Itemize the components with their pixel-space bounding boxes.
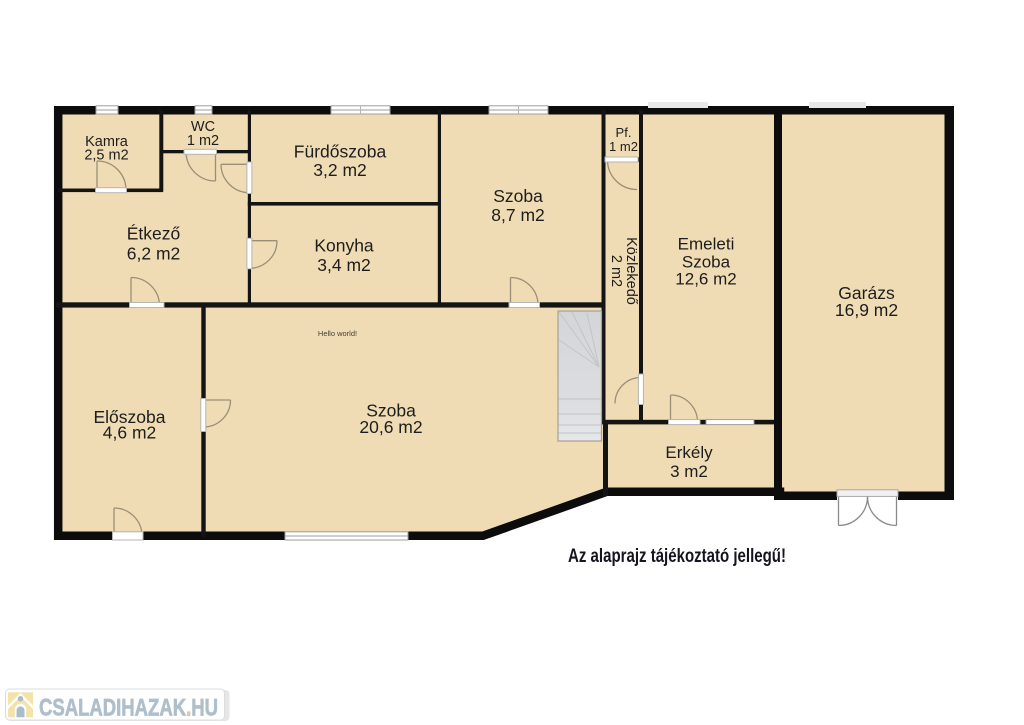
svg-text:Konyha: Konyha <box>314 236 374 256</box>
svg-text:Az alaprajz tájékoztató jelleg: Az alaprajz tájékoztató jellegű! <box>568 546 786 567</box>
svg-text:2 m2: 2 m2 <box>608 255 624 287</box>
svg-text:1 m2: 1 m2 <box>187 133 219 149</box>
svg-text:3 m2: 3 m2 <box>670 462 708 481</box>
svg-text:4,6 m2: 4,6 m2 <box>103 423 157 443</box>
svg-text:Közlekedő: Közlekedő <box>623 237 639 305</box>
svg-text:Pf.: Pf. <box>616 125 632 140</box>
svg-text:Étkező: Étkező <box>127 224 181 244</box>
svg-text:16,9 m2: 16,9 m2 <box>835 300 898 320</box>
svg-text:6,2 m2: 6,2 m2 <box>127 244 181 264</box>
svg-text:1 m2: 1 m2 <box>609 139 638 154</box>
svg-text:12,6 m2: 12,6 m2 <box>675 270 736 289</box>
svg-text:CSALADIHAZAK.HU: CSALADIHAZAK.HU <box>39 695 218 722</box>
svg-text:Emeleti: Emeleti <box>678 235 735 254</box>
svg-text:3,4 m2: 3,4 m2 <box>317 255 371 275</box>
svg-text:Erkély: Erkély <box>665 443 713 462</box>
svg-text:8,7 m2: 8,7 m2 <box>491 205 545 225</box>
svg-text:20,6 m2: 20,6 m2 <box>359 417 422 437</box>
svg-text:Fürdőszoba: Fürdőszoba <box>294 142 387 162</box>
svg-text:2,5 m2: 2,5 m2 <box>84 148 128 164</box>
svg-text:3,2 m2: 3,2 m2 <box>313 160 367 180</box>
svg-text:Hello world!: Hello world! <box>318 329 357 338</box>
svg-text:Szoba: Szoba <box>493 186 543 206</box>
